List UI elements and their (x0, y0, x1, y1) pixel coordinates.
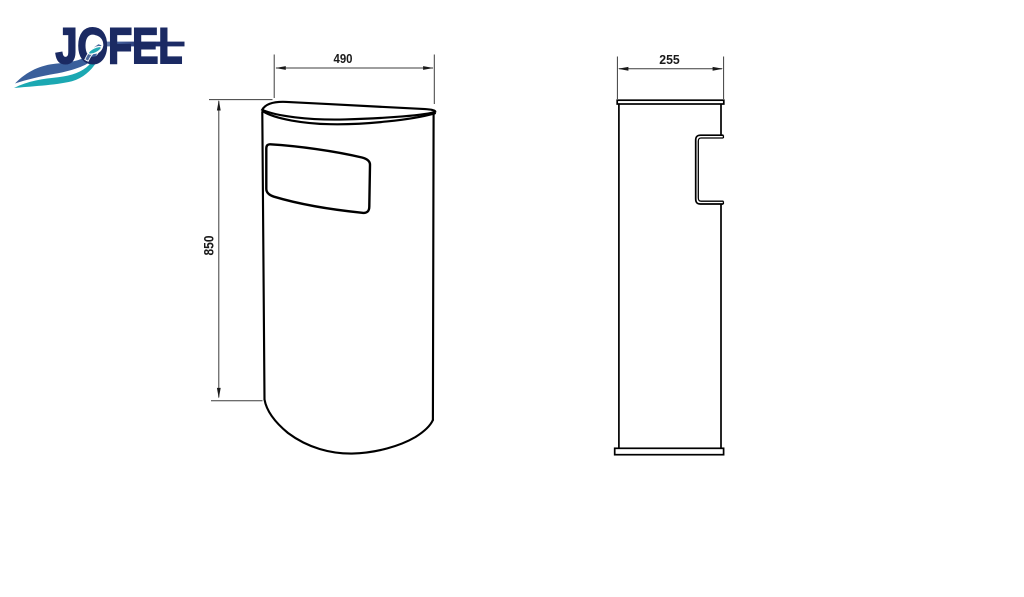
svg-text:JOFEL: JOFEL (56, 18, 183, 74)
svg-text:850: 850 (202, 236, 217, 256)
svg-text:255: 255 (659, 52, 680, 67)
svg-text:490: 490 (334, 51, 353, 66)
